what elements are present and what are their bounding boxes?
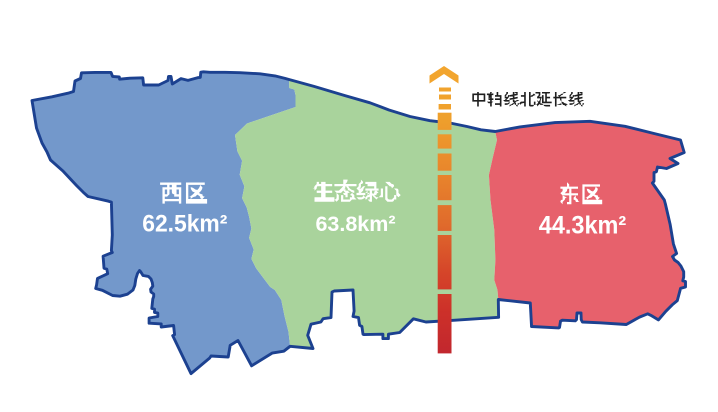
svg-text:63.8km²: 63.8km²	[315, 212, 395, 236]
svg-text:44.3km²: 44.3km²	[539, 212, 626, 240]
svg-text:62.5km²: 62.5km²	[142, 210, 227, 236]
